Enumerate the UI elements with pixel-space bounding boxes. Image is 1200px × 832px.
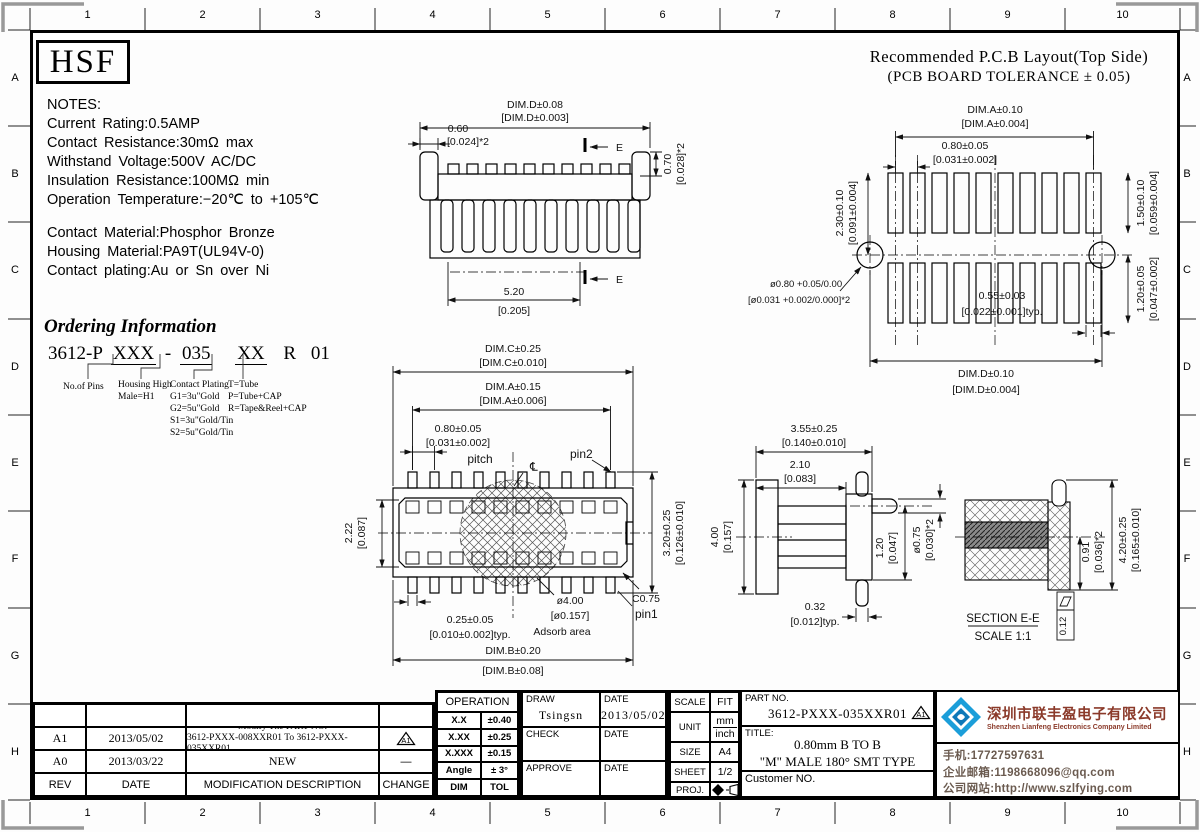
dim-label: 3.20±0.25 <box>661 510 673 557</box>
company-name-en: Shenzhen Lianfeng Electronics Company Li… <box>987 724 1167 731</box>
dim-label: 0.25±0.05 <box>447 614 494 626</box>
dim-label: [0.165±0.010] <box>1130 508 1142 572</box>
dim-label: 4.20±0.25 <box>1117 517 1129 564</box>
dim-label: 0.91 <box>1080 542 1092 563</box>
dim-label: 1.20 <box>874 538 886 559</box>
drawing-sheet: 1 2 3 4 5 6 7 8 9 10 1 2 3 4 5 6 7 8 9 1… <box>0 0 1200 832</box>
ordering-title: Ordering Information <box>44 316 217 338</box>
tol-dim: X.X <box>437 712 481 729</box>
size-value: A4 <box>710 742 740 762</box>
change-triangle-label: A1 <box>401 736 410 745</box>
company-header: 深圳市联丰盈电子有限公司 Shenzhen Lianfeng Electroni… <box>937 692 1178 744</box>
part-info-block: PART NO. 3612-PXXX-035XXR01 A1 TITLE: 0.… <box>740 690 935 798</box>
dim-label: ø0.75 <box>911 526 923 553</box>
dim-label: [0.140±0.010] <box>782 437 846 449</box>
section-mark-label: E <box>616 274 623 286</box>
operation-header: OPERATION <box>437 692 518 712</box>
note-line: Housing Material:PA9T(UL94V-0) <box>47 243 319 262</box>
dim-label: ø4.00 <box>557 595 584 607</box>
projection-symbol-icon <box>710 782 740 798</box>
draw-value: Tsingsn <box>523 708 599 723</box>
ruler-bottom-8: 8 <box>835 807 950 819</box>
plating-option: G1=3u"Gold <box>170 391 233 403</box>
ordering-leader-lines <box>45 352 345 382</box>
revision-table: A1 2013/05/02 Modify The PART NO. 3612-P… <box>32 702 435 798</box>
dim-label: [0.022±0.001]typ. <box>961 306 1042 318</box>
part-no-row: PART NO. 3612-PXXX-035XXR01 A1 <box>742 692 933 727</box>
dim-label: [DIM.A±0.006] <box>479 395 546 407</box>
chamfer-label: C0.75 <box>632 593 660 605</box>
dim-label: 1.50±0.10 <box>1135 180 1147 227</box>
section-mark-label: E <box>616 142 623 154</box>
ruler-top-4: 4 <box>375 9 490 21</box>
section-outline <box>965 480 1070 590</box>
tol-val: ±0.40 <box>481 712 518 729</box>
ruler-bottom-3: 3 <box>260 807 375 819</box>
date-label: DATE <box>604 694 629 705</box>
hsf-logo-text: HSF <box>50 44 117 81</box>
ruler-bottom-5: 5 <box>490 807 605 819</box>
revision-header-change: CHANGE <box>379 773 433 796</box>
dim-label: DIM.A±0.10 <box>967 104 1023 116</box>
note-line: Current Rating:0.5AMP <box>47 115 319 134</box>
dim-label: DIM.B±0.20 <box>485 645 541 657</box>
company-website: 公司网站:http://www.szlfying.com <box>943 781 1172 798</box>
revision-description: Modify The PART NO. 3612-PXXX-008XXR01 T… <box>186 727 379 750</box>
section-scale-label: SCALE 1:1 <box>975 631 1032 643</box>
ruler-top-7: 7 <box>720 9 835 21</box>
dim-label: [0.157] <box>722 521 734 553</box>
unit-inch: inch <box>715 728 734 740</box>
dim-label: 0.70 <box>662 154 674 175</box>
centerline-symbol: ℄ <box>529 460 538 474</box>
pin2-label: pin2 <box>570 447 593 461</box>
signature-table: DRAWTsingsn DATE2013/05/02 CHECK DATE AP… <box>520 690 668 798</box>
company-name-cn: 深圳市联丰盈电子有限公司 <box>987 703 1167 724</box>
hsf-logo: HSF <box>36 40 130 84</box>
draw-cell: DRAWTsingsn <box>522 692 600 727</box>
drawing-title-line2: "M" MALE 180° SMT TYPE <box>742 754 933 770</box>
dim-label: [ø0.157] <box>551 610 590 622</box>
dim-label: 0.80±0.05 <box>942 140 989 152</box>
tolerance-table: OPERATION X.X ±0.40 X.XX ±0.25 X.XXX ±0.… <box>435 690 520 798</box>
pin1-label: pin1 <box>635 607 658 621</box>
revision-desc-line: 3612-PXXX-008XXR01 To 3612-PXXX-035XXR01 <box>187 733 378 750</box>
ruler-bottom-2: 2 <box>145 807 260 819</box>
date-label: DATE <box>604 729 629 740</box>
dim-label: DIM.A±0.15 <box>485 381 541 393</box>
ruler-top-5: 5 <box>490 9 605 21</box>
adsorb-area-label: Adsorb area <box>533 626 590 638</box>
package-option: R=Tape&Reel+CAP <box>228 403 307 415</box>
draw-date-cell: DATE2013/05/02 <box>600 692 666 727</box>
dim-label: [0.036]*2 <box>1093 531 1105 573</box>
note-line: Contact Resistance:30mΩ max <box>47 134 319 153</box>
company-logo-icon <box>940 696 982 738</box>
size-label: SIZE <box>670 742 710 762</box>
draw-date-value: 2013/05/02 <box>601 708 665 723</box>
ruler-bottom-9: 9 <box>950 807 1065 819</box>
note-line: Contact Material:Phosphor Bronze <box>47 224 319 243</box>
tol-dim: DIM <box>437 779 481 796</box>
part-no-value: 3612-PXXX-035XXR01 <box>742 706 933 722</box>
dim-label: [0.024]*2 <box>447 136 489 148</box>
dim-label: [DIM.D±0.003] <box>501 112 569 124</box>
revision-header-date: DATE <box>86 773 186 796</box>
customer-label: Customer NO. <box>745 773 815 785</box>
dim-label: 3.55±0.25 <box>791 423 838 435</box>
unit-mm: mm <box>713 715 737 728</box>
note-line: Contact plating:Au or Sn over Ni <box>47 262 319 281</box>
ruler-top-9: 9 <box>950 9 1065 21</box>
ordering-label-package: T=Tube P=Tube+CAP R=Tape&Reel+CAP <box>228 379 307 415</box>
ordering-label-pins: No.of Pins <box>63 381 104 393</box>
pitch-label: pitch <box>467 452 492 466</box>
dim-label: 4.00 <box>709 527 721 548</box>
part-change-triangle-icon: A1 <box>911 705 931 720</box>
title-row: TITLE: 0.80mm B TO B "M" MALE 180° SMT T… <box>742 727 933 772</box>
change-triangle-icon: A1 <box>396 731 416 746</box>
dim-label: 0.32 <box>805 601 826 613</box>
scale-value: FIT <box>710 692 740 712</box>
dim-label: [DIM.D±0.004] <box>952 384 1020 396</box>
check-date-cell: DATE <box>600 727 666 762</box>
ruler-left-h: H <box>2 704 28 800</box>
note-line: Insulation Resistance:100MΩ min <box>47 172 319 191</box>
revision-change-mark: — <box>379 750 433 773</box>
tol-val: ±0.25 <box>481 729 518 746</box>
dim-label: [DIM.B±0.08] <box>482 665 543 677</box>
ruler-left-c: C <box>2 222 28 318</box>
plating-title: Contact Plating <box>170 379 233 391</box>
ruler-bottom-7: 7 <box>720 807 835 819</box>
tol-dim: Angle <box>437 762 481 779</box>
dim-label: [0.010±0.002]typ. <box>429 629 510 641</box>
unit-label: UNIT <box>670 712 710 742</box>
dim-label: [0.091±0.004] <box>847 181 859 245</box>
plating-option: G2=5u"Gold <box>170 403 233 415</box>
check-label: CHECK <box>526 729 559 740</box>
part-no-label: PART NO. <box>745 693 789 704</box>
sheet-value: 1/2 <box>710 762 740 782</box>
revision-rev: A1 <box>34 727 86 750</box>
revision-change-mark: A1 <box>379 727 433 750</box>
ruler-top-2: 2 <box>145 9 260 21</box>
revision-description: NEW <box>186 750 379 773</box>
housing-label-line: Housing High <box>118 379 172 391</box>
dim-label: [0.012]typ. <box>790 616 839 628</box>
ruler-top-3: 3 <box>260 9 375 21</box>
revision-header-rev: REV <box>34 773 86 796</box>
dim-label: 0.80±0.05 <box>435 423 482 435</box>
drawing-title-line1: 0.80mm B TO B <box>742 737 933 753</box>
company-phone: 手机:17727597631 <box>943 748 1172 765</box>
dim-label: ø0.80 +0.05/0.00 <box>770 279 842 290</box>
section-view-drawing: 0.91 [0.036]*2 4.20±0.25 [0.165±0.010] 0… <box>950 460 1180 660</box>
ruler-left-e: E <box>2 415 28 511</box>
connector-front-outline <box>420 152 650 258</box>
housing-label-line: Male=H1 <box>118 391 172 403</box>
dim-label: DIM.D±0.10 <box>958 368 1014 380</box>
pcb-layout-drawing: DIM.A±0.10 [DIM.A±0.004] 0.80±0.05 [0.03… <box>740 95 1180 405</box>
notes-title: NOTES: <box>47 96 319 115</box>
dim-label: [0.047±0.002] <box>1148 257 1160 321</box>
meta-table: SCALE FIT UNIT mm inch SIZE A4 SHEET 1/2… <box>668 690 740 798</box>
notes-block: NOTES: Current Rating:0.5AMP Contact Res… <box>47 96 319 281</box>
note-line: Operation Temperature:−20℃ to +105℃ <box>47 191 319 210</box>
dim-label: 2.10 <box>790 459 811 471</box>
ruler-left-d: D <box>2 319 28 415</box>
revision-header-desc: MODIFICATION DESCRIPTION <box>186 773 379 796</box>
dim-label: [0.031±0.002] <box>426 437 490 449</box>
dim-label: [0.083] <box>784 473 816 485</box>
dim-label: 2.22 <box>343 523 355 544</box>
dim-label: [0.031±0.002] <box>933 154 997 166</box>
ruler-top-8: 8 <box>835 9 950 21</box>
dim-label: DIM.C±0.25 <box>485 343 541 355</box>
company-contacts: 手机:17727597631 企业邮箱:1198668096@qq.com 公司… <box>937 744 1178 802</box>
draw-label: DRAW <box>526 694 555 705</box>
pcb-layout-title: Recommended P.C.B Layout(Top Side) <box>838 47 1180 67</box>
note-line: Withstand Voltage:500V AC/DC <box>47 153 319 172</box>
revision-date: 2013/05/02 <box>86 727 186 750</box>
plating-option: S2=5u"Gold/Tin <box>170 427 233 439</box>
scale-label: SCALE <box>670 692 710 712</box>
dim-label: [DIM.A±0.004] <box>961 118 1028 130</box>
revision-date: 2013/03/22 <box>86 750 186 773</box>
unit-value: mm inch <box>710 712 740 742</box>
pcb-layout-subtitle: (PCB BOARD TOLERANCE ± 0.05) <box>838 69 1180 86</box>
ordering-label-plating: Contact Plating G1=3u"Gold G2=5u"Gold S1… <box>170 379 233 439</box>
flatness-value: 0.12 <box>1058 617 1069 636</box>
tol-val: ± 3° <box>481 762 518 779</box>
tol-dim: X.XX <box>437 729 481 746</box>
package-option: T=Tube <box>228 379 307 391</box>
dim-label: [DIM.C±0.010] <box>479 357 547 369</box>
dim-label: [0.059±0.004] <box>1148 171 1160 235</box>
ruler-bottom-4: 4 <box>375 807 490 819</box>
dim-label: 2.30±0.10 <box>834 190 846 237</box>
dim-label: 0.55±0.03 <box>979 290 1026 302</box>
ruler-left-g: G <box>2 608 28 704</box>
dim-label: [ø0.031 +0.002/0.000]*2 <box>748 295 850 306</box>
dim-label: 1.20±0.05 <box>1135 266 1147 313</box>
dim-label: [0.205] <box>498 305 530 317</box>
section-label: SECTION E-E <box>966 613 1040 625</box>
tol-dim: X.XXX <box>437 746 481 763</box>
top-view-drawing: DIM.C±0.25 [DIM.C±0.010] DIM.A±0.15 [DIM… <box>330 340 700 685</box>
dim-label: 0.60 <box>448 123 469 135</box>
approve-date-cell: DATE <box>600 761 666 796</box>
customer-row: Customer NO. <box>742 772 933 795</box>
plating-option: S1=3u"Gold/Tin <box>170 415 233 427</box>
dim-label: [0.126±0.010] <box>674 501 686 565</box>
ruler-top-10: 10 <box>1065 9 1180 21</box>
revision-rev: A0 <box>34 750 86 773</box>
ruler-bottom-6: 6 <box>605 807 720 819</box>
ruler-left-b: B <box>2 126 28 222</box>
dim-label: DIM.D±0.08 <box>507 99 563 111</box>
tol-val: TOL <box>481 779 518 796</box>
ruler-bottom-1: 1 <box>30 807 145 819</box>
company-block: 深圳市联丰盈电子有限公司 Shenzhen Lianfeng Electroni… <box>935 690 1180 798</box>
dim-label: [0.087] <box>356 517 368 549</box>
date-label: DATE <box>604 763 629 774</box>
ruler-bottom-10: 10 <box>1065 807 1180 819</box>
ruler-top-6: 6 <box>605 9 720 21</box>
check-cell: CHECK <box>522 727 600 762</box>
part-change-label: A1 <box>916 710 925 719</box>
ruler-left-a: A <box>2 30 28 126</box>
dim-label: [0.030]*2 <box>924 519 936 561</box>
dim-label: [0.047] <box>887 532 899 564</box>
sheet-label: SHEET <box>670 762 710 782</box>
ruler-left-f: F <box>2 511 28 607</box>
approve-label: APPROVE <box>526 763 572 774</box>
front-view-drawing: DIM.D±0.08 [DIM.D±0.003] 0.60 [0.024]*2 … <box>380 88 690 318</box>
proj-label: PROJ. <box>670 782 710 798</box>
tol-val: ±0.15 <box>481 746 518 763</box>
ordering-label-housing: Housing High Male=H1 <box>118 379 172 403</box>
package-option: P=Tube+CAP <box>228 391 307 403</box>
company-email: 企业邮箱:1198668096@qq.com <box>943 765 1172 782</box>
ruler-top-1: 1 <box>30 9 145 21</box>
dim-label: [0.028]*2 <box>675 143 687 185</box>
side-view-drawing: 3.55±0.25 [0.140±0.010] 2.10 [0.083] 4.0… <box>700 420 965 645</box>
approve-cell: APPROVE <box>522 761 600 796</box>
dim-label: 5.20 <box>504 286 525 298</box>
